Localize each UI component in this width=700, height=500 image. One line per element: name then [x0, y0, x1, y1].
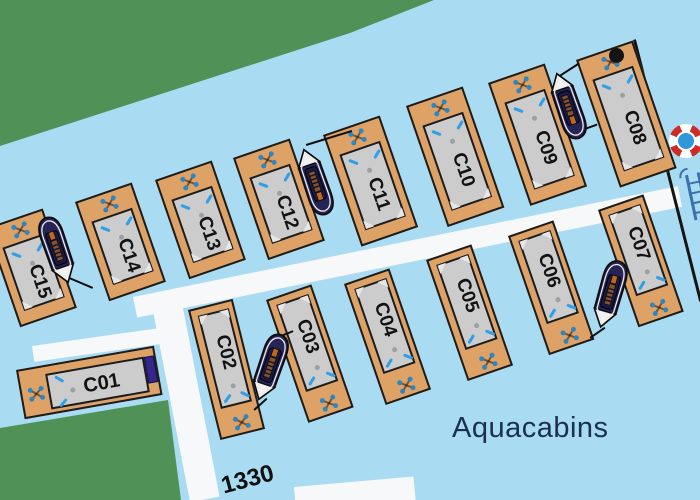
- dock-label: C07: [622, 224, 654, 264]
- roof-vent-dash: [485, 329, 495, 335]
- corner-wedge: [363, 218, 374, 229]
- marina-map: C01C02C03C04C05C06C07C08C09C10C11C12C13C…: [0, 0, 700, 500]
- roof-dot: [230, 383, 236, 389]
- dock-label: C12: [270, 193, 302, 233]
- corner-wedge: [562, 167, 573, 178]
- corner-wedge: [393, 207, 404, 218]
- roof-dot: [70, 387, 76, 393]
- dock-C13: C13: [155, 160, 246, 279]
- roof-vent-dash: [373, 149, 381, 159]
- cabin-C02: C02: [198, 308, 252, 409]
- walkway-segment-4: [294, 477, 416, 500]
- corner-wedge: [609, 213, 620, 224]
- dock-C14: C14: [75, 182, 166, 301]
- corner-wedge: [519, 239, 530, 250]
- corner-wedge: [191, 250, 202, 261]
- roof-vent-dash: [467, 334, 475, 344]
- corner-wedge: [355, 287, 366, 298]
- dock-label: C02: [210, 333, 240, 372]
- area-label: Aquacabins: [452, 412, 609, 445]
- dock-label: C11: [362, 175, 394, 214]
- roof-dot: [619, 92, 625, 98]
- roof-vent-dash: [431, 130, 441, 136]
- corner-wedge: [532, 177, 543, 188]
- roof-dot: [473, 322, 479, 328]
- corner-wedge: [277, 303, 288, 314]
- roof-dot: [391, 346, 397, 352]
- corner-wedge: [437, 263, 448, 274]
- mooring-post: [609, 48, 624, 63]
- roof-vent-dash: [180, 204, 190, 210]
- dock-label: C13: [192, 213, 224, 253]
- corner-wedge: [622, 159, 633, 170]
- roof-dot: [314, 364, 320, 370]
- roof-vent-dash: [456, 120, 464, 130]
- roof-vent-dash: [626, 74, 634, 84]
- roof-vent-dash: [348, 159, 358, 165]
- roof-vent-dash: [601, 84, 611, 90]
- dock-label: C10: [446, 150, 478, 190]
- corner-wedge: [377, 279, 388, 290]
- lifebuoy-icon: [669, 124, 700, 158]
- corner-wedge: [480, 188, 491, 199]
- dock-C06: C06: [508, 220, 594, 355]
- cabin-C13: C13: [171, 186, 233, 263]
- cabin-C05: C05: [436, 254, 497, 350]
- roof-vent-dash: [549, 308, 557, 318]
- dock-C08: C08: [576, 40, 677, 187]
- cabin-C14: C14: [91, 208, 153, 285]
- roof-vent-dash: [638, 280, 646, 290]
- corner-wedge: [219, 309, 230, 320]
- cabin-C01: C01: [45, 357, 150, 410]
- roof-dot: [449, 138, 455, 144]
- corner-wedge: [541, 231, 552, 242]
- roof-dot: [366, 167, 372, 173]
- cabin-C10: C10: [422, 112, 492, 211]
- pier-number-label: 1330: [218, 460, 277, 500]
- roof-dot: [531, 115, 537, 121]
- corner-wedge: [299, 295, 310, 306]
- lifebuoy-center: [676, 131, 696, 151]
- dock-label: C03: [291, 317, 323, 357]
- roof-vent-dash: [223, 394, 231, 404]
- roof-vent-dash: [403, 353, 413, 359]
- roof-vent-dash: [538, 97, 546, 107]
- roof-vent-dash: [125, 216, 133, 226]
- roof-vent-dash: [205, 194, 213, 204]
- roof-vent-dash: [11, 252, 21, 258]
- corner-wedge: [631, 205, 642, 216]
- dock-label: C06: [532, 251, 564, 291]
- roof-vent-dash: [258, 182, 268, 188]
- cabin-C11: C11: [339, 141, 406, 231]
- dock-label: C01: [82, 369, 122, 398]
- dock-label: C14: [112, 235, 144, 275]
- dock-label: C09: [529, 128, 561, 168]
- corner-wedge: [22, 298, 33, 309]
- roof-vent-dash: [100, 226, 110, 232]
- corner-wedge: [111, 272, 122, 283]
- cabin-C08: C08: [592, 66, 664, 172]
- dock-C04: C04: [344, 268, 431, 405]
- roof-vent-dash: [513, 107, 523, 113]
- cabin-C06: C06: [518, 230, 579, 324]
- corner-wedge: [199, 314, 210, 325]
- dock-label: C08: [618, 107, 650, 147]
- boat-5: [246, 329, 294, 406]
- corner-wedge: [652, 148, 663, 159]
- roof-vent-dash: [283, 172, 291, 182]
- dock-label: C05: [451, 276, 483, 316]
- roof-vent-dash: [54, 375, 64, 383]
- cabin-C04: C04: [354, 278, 415, 374]
- roof-vent-dash: [308, 376, 316, 386]
- dock-label: C04: [369, 300, 401, 340]
- ladder-icon: [681, 168, 700, 221]
- roof-dot: [555, 297, 561, 303]
- corner-wedge: [459, 255, 470, 266]
- dock-C10: C10: [406, 86, 504, 227]
- roof-vent-dash: [385, 358, 393, 368]
- dock-C05: C05: [426, 244, 513, 381]
- roof-vent-dash: [656, 276, 666, 282]
- boat-4: [588, 256, 633, 332]
- corner-wedge: [270, 231, 281, 242]
- roof-vent-dash: [59, 398, 68, 408]
- roof-dot: [644, 269, 650, 275]
- roof-vent-dash: [326, 371, 336, 377]
- corner-wedge: [449, 198, 460, 209]
- roof-vent-dash: [566, 303, 576, 309]
